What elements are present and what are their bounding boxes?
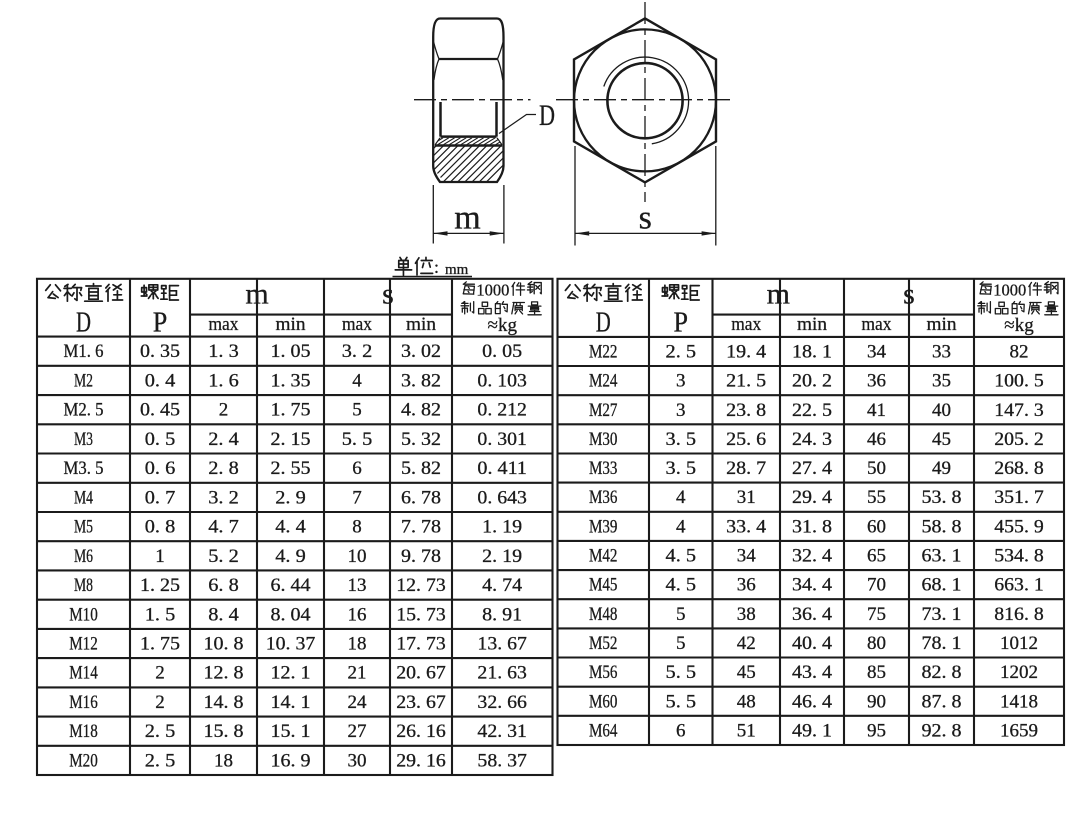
svg-text:0. 6: 0. 6	[145, 458, 176, 479]
svg-text:0. 8: 0. 8	[145, 517, 176, 538]
svg-text:6. 44: 6. 44	[271, 575, 312, 596]
svg-text:60: 60	[867, 516, 886, 537]
svg-text:4. 7: 4. 7	[208, 517, 239, 538]
svg-text:1. 75: 1. 75	[271, 400, 311, 421]
svg-text:20. 67: 20. 67	[396, 663, 446, 684]
svg-text:min: min	[406, 314, 437, 335]
svg-text:M42: M42	[589, 546, 618, 567]
svg-text:63. 1: 63. 1	[922, 546, 962, 567]
svg-text:32. 66: 32. 66	[477, 692, 527, 713]
svg-text:51: 51	[737, 720, 756, 741]
svg-text:M18: M18	[69, 721, 98, 742]
svg-text:18: 18	[214, 750, 233, 771]
svg-text:1418: 1418	[1000, 691, 1038, 712]
svg-text:34. 4: 34. 4	[792, 575, 833, 596]
svg-text:4. 82: 4. 82	[401, 400, 441, 421]
svg-text:M2. 5: M2. 5	[64, 400, 104, 421]
svg-text:21. 63: 21. 63	[477, 663, 527, 684]
svg-text:21. 5: 21. 5	[726, 371, 766, 392]
svg-text:D: D	[76, 308, 91, 339]
svg-text:78. 1: 78. 1	[922, 633, 962, 654]
svg-text:M60: M60	[589, 691, 618, 712]
svg-text:48: 48	[737, 691, 756, 712]
svg-text:6. 8: 6. 8	[208, 575, 239, 596]
svg-text:205. 2: 205. 2	[994, 429, 1044, 450]
svg-text:min: min	[797, 314, 828, 335]
svg-text:43. 4: 43. 4	[792, 662, 833, 683]
svg-text:38: 38	[737, 604, 756, 625]
svg-text:4. 4: 4. 4	[275, 517, 306, 538]
svg-text:s: s	[639, 200, 652, 237]
svg-text:15. 1: 15. 1	[271, 721, 311, 742]
svg-text:85: 85	[867, 662, 886, 683]
svg-text:816. 8: 816. 8	[994, 604, 1044, 625]
svg-text:29. 16: 29. 16	[396, 750, 446, 771]
svg-text:29. 4: 29. 4	[792, 487, 833, 508]
svg-text:M14: M14	[69, 663, 98, 684]
svg-text:5. 32: 5. 32	[401, 429, 441, 450]
svg-text:M16: M16	[69, 692, 98, 713]
svg-text:36. 4: 36. 4	[792, 604, 833, 625]
svg-text:95: 95	[867, 720, 886, 741]
svg-text::: :	[434, 257, 439, 277]
svg-text:41: 41	[867, 400, 886, 421]
svg-text:1: 1	[155, 546, 165, 567]
svg-text:6. 78: 6. 78	[401, 487, 441, 508]
svg-text:1012: 1012	[1000, 633, 1038, 654]
svg-text:0. 45: 0. 45	[140, 400, 180, 421]
svg-text:m: m	[767, 278, 790, 311]
svg-text:M1. 6: M1. 6	[64, 341, 104, 362]
svg-text:s: s	[903, 278, 915, 311]
svg-text:58. 37: 58. 37	[477, 750, 527, 771]
svg-text:70: 70	[867, 575, 886, 596]
svg-text:P: P	[153, 308, 168, 339]
svg-text:3. 82: 3. 82	[401, 370, 441, 391]
svg-text:2. 15: 2. 15	[271, 429, 311, 450]
svg-text:15. 8: 15. 8	[204, 721, 244, 742]
svg-text:87. 8: 87. 8	[922, 691, 962, 712]
svg-text:12. 8: 12. 8	[204, 663, 244, 684]
svg-text:68. 1: 68. 1	[922, 575, 962, 596]
svg-text:1659: 1659	[1000, 720, 1038, 741]
svg-text:s: s	[382, 278, 394, 311]
svg-text:1. 6: 1. 6	[208, 370, 239, 391]
svg-text:5: 5	[352, 400, 362, 421]
svg-text:73. 1: 73. 1	[922, 604, 962, 625]
svg-text:4: 4	[676, 516, 686, 537]
svg-text:4: 4	[352, 370, 362, 391]
svg-text:53. 8: 53. 8	[922, 487, 962, 508]
svg-text:82: 82	[1010, 342, 1029, 363]
svg-text:1000: 1000	[476, 281, 509, 300]
svg-text:4. 5: 4. 5	[666, 546, 697, 567]
svg-text:5. 2: 5. 2	[208, 546, 239, 567]
svg-text:1. 3: 1. 3	[208, 341, 239, 362]
svg-text:M10: M10	[69, 604, 98, 625]
svg-text:6: 6	[352, 458, 362, 479]
svg-text:3. 5: 3. 5	[666, 458, 697, 479]
svg-text:8. 91: 8. 91	[482, 604, 522, 625]
svg-text:534. 8: 534. 8	[994, 546, 1044, 567]
svg-text:M36: M36	[589, 487, 618, 508]
svg-text:46. 4: 46. 4	[792, 691, 833, 712]
svg-text:3: 3	[676, 371, 686, 392]
svg-text:1000: 1000	[993, 281, 1026, 300]
svg-text:0. 35: 0. 35	[140, 341, 180, 362]
svg-text:M27: M27	[589, 400, 618, 421]
svg-text:P: P	[674, 308, 689, 339]
svg-text:8: 8	[352, 517, 362, 538]
svg-text:13. 67: 13. 67	[477, 634, 527, 655]
svg-text:M4: M4	[74, 487, 93, 508]
svg-text:2. 55: 2. 55	[271, 458, 311, 479]
svg-text:7: 7	[352, 487, 362, 508]
svg-text:9. 78: 9. 78	[401, 546, 441, 567]
svg-text:≈kg: ≈kg	[1004, 315, 1034, 336]
svg-text:32. 4: 32. 4	[792, 546, 833, 567]
svg-text:max: max	[862, 314, 892, 335]
svg-text:33: 33	[932, 342, 951, 363]
svg-text:25. 6: 25. 6	[726, 429, 766, 450]
svg-text:23. 67: 23. 67	[396, 692, 446, 713]
svg-text:24. 3: 24. 3	[792, 429, 832, 450]
svg-text:45: 45	[737, 662, 756, 683]
svg-text:m: m	[245, 278, 268, 311]
svg-text:12. 73: 12. 73	[396, 575, 446, 596]
svg-text:8. 04: 8. 04	[271, 604, 312, 625]
svg-text:268. 8: 268. 8	[994, 458, 1044, 479]
svg-text:2. 5: 2. 5	[145, 721, 176, 742]
svg-text:90: 90	[867, 691, 886, 712]
svg-text:92. 8: 92. 8	[922, 720, 962, 741]
svg-text:M3: M3	[74, 429, 93, 450]
svg-text:4. 74: 4. 74	[482, 575, 523, 596]
svg-text:5. 5: 5. 5	[342, 429, 373, 450]
svg-text:30: 30	[348, 750, 367, 771]
svg-text:M56: M56	[589, 662, 618, 683]
svg-text:2. 5: 2. 5	[145, 750, 176, 771]
svg-text:M24: M24	[589, 371, 618, 392]
svg-text:2: 2	[155, 692, 165, 713]
svg-text:0. 4: 0. 4	[145, 370, 176, 391]
svg-text:42. 31: 42. 31	[477, 721, 527, 742]
svg-text:27. 4: 27. 4	[792, 458, 833, 479]
svg-text:M45: M45	[589, 575, 618, 596]
svg-text:0. 643: 0. 643	[477, 487, 527, 508]
svg-text:663. 1: 663. 1	[994, 575, 1044, 596]
svg-text:55: 55	[867, 487, 886, 508]
svg-text:max: max	[342, 314, 372, 335]
svg-text:5: 5	[676, 633, 686, 654]
svg-text:M52: M52	[589, 633, 618, 654]
svg-text:0. 05: 0. 05	[482, 341, 522, 362]
svg-text:23. 8: 23. 8	[726, 400, 766, 421]
svg-text:24: 24	[348, 692, 368, 713]
svg-text:m: m	[454, 200, 480, 237]
svg-text:58. 8: 58. 8	[922, 516, 962, 537]
svg-text:35: 35	[932, 371, 951, 392]
svg-text:16: 16	[348, 604, 367, 625]
svg-text:49. 1: 49. 1	[792, 720, 832, 741]
svg-text:18: 18	[348, 634, 367, 655]
svg-text:351. 7: 351. 7	[994, 487, 1044, 508]
svg-text:M48: M48	[589, 604, 618, 625]
svg-text:M33: M33	[589, 458, 618, 479]
svg-text:26. 16: 26. 16	[396, 721, 446, 742]
svg-text:3: 3	[676, 400, 686, 421]
svg-text:147. 3: 147. 3	[994, 400, 1044, 421]
svg-text:M2: M2	[74, 370, 93, 391]
svg-text:M8: M8	[74, 575, 93, 596]
svg-text:3. 5: 3. 5	[666, 429, 697, 450]
svg-text:1. 25: 1. 25	[140, 575, 180, 596]
svg-text:2. 9: 2. 9	[275, 487, 306, 508]
svg-text:65: 65	[867, 546, 886, 567]
svg-text:31. 8: 31. 8	[792, 516, 832, 537]
svg-text:M3. 5: M3. 5	[64, 458, 104, 479]
svg-text:14. 1: 14. 1	[271, 692, 311, 713]
svg-text:36: 36	[737, 575, 756, 596]
svg-text:20. 2: 20. 2	[792, 371, 832, 392]
svg-text:5. 5: 5. 5	[666, 691, 697, 712]
svg-text:1. 05: 1. 05	[271, 341, 311, 362]
svg-text:M64: M64	[589, 720, 618, 741]
svg-text:27: 27	[348, 721, 367, 742]
svg-text:M39: M39	[589, 516, 618, 537]
svg-text:33. 4: 33. 4	[726, 516, 767, 537]
svg-text:17. 73: 17. 73	[396, 634, 446, 655]
svg-text:4. 5: 4. 5	[666, 575, 697, 596]
svg-text:16. 9: 16. 9	[271, 750, 311, 771]
svg-text:8. 4: 8. 4	[208, 604, 239, 625]
svg-text:≈kg: ≈kg	[488, 315, 518, 336]
svg-text:80: 80	[867, 633, 886, 654]
svg-text:40: 40	[932, 400, 951, 421]
svg-text:2. 8: 2. 8	[208, 458, 239, 479]
svg-text:2. 19: 2. 19	[482, 546, 522, 567]
svg-text:3. 02: 3. 02	[401, 341, 441, 362]
svg-text:75: 75	[867, 604, 886, 625]
svg-text:40. 4: 40. 4	[792, 633, 833, 654]
svg-text:D: D	[539, 99, 555, 132]
svg-text:M5: M5	[74, 517, 93, 538]
svg-text:1. 75: 1. 75	[140, 634, 180, 655]
svg-text:34: 34	[867, 342, 887, 363]
svg-text:82. 8: 82. 8	[922, 662, 962, 683]
svg-text:10: 10	[348, 546, 367, 567]
svg-text:1202: 1202	[1000, 662, 1038, 683]
svg-text:455. 9: 455. 9	[994, 516, 1044, 537]
svg-text:4. 9: 4. 9	[275, 546, 306, 567]
svg-text:14. 8: 14. 8	[204, 692, 244, 713]
svg-text:min: min	[927, 314, 958, 335]
svg-text:13: 13	[348, 575, 367, 596]
svg-text:19. 4: 19. 4	[726, 342, 767, 363]
svg-text:3. 2: 3. 2	[208, 487, 239, 508]
svg-text:1. 5: 1. 5	[145, 604, 176, 625]
svg-text:0. 7: 0. 7	[145, 487, 176, 508]
svg-text:36: 36	[867, 371, 886, 392]
svg-text:0. 411: 0. 411	[477, 458, 527, 479]
svg-text:M20: M20	[69, 750, 98, 771]
svg-text:M22: M22	[589, 342, 618, 363]
svg-text:5. 5: 5. 5	[666, 662, 697, 683]
svg-text:M30: M30	[589, 429, 618, 450]
svg-text:max: max	[731, 314, 761, 335]
svg-text:21: 21	[348, 663, 367, 684]
svg-text:42: 42	[737, 633, 756, 654]
svg-text:50: 50	[867, 458, 886, 479]
svg-text:15. 73: 15. 73	[396, 604, 446, 625]
svg-text:5: 5	[676, 604, 686, 625]
svg-text:100. 5: 100. 5	[994, 371, 1044, 392]
svg-text:49: 49	[932, 458, 951, 479]
svg-text:2: 2	[155, 663, 165, 684]
svg-text:D: D	[596, 308, 611, 339]
svg-text:46: 46	[867, 429, 886, 450]
svg-text:12. 1: 12. 1	[271, 663, 311, 684]
svg-text:1. 35: 1. 35	[271, 370, 311, 391]
svg-text:34: 34	[737, 546, 757, 567]
svg-text:3. 2: 3. 2	[342, 341, 373, 362]
svg-text:M6: M6	[74, 546, 93, 567]
svg-text:mm: mm	[445, 262, 469, 278]
svg-text:28. 7: 28. 7	[726, 458, 766, 479]
svg-text:0. 103: 0. 103	[477, 370, 527, 391]
svg-text:0. 301: 0. 301	[477, 429, 527, 450]
svg-text:0. 5: 0. 5	[145, 429, 176, 450]
svg-text:2: 2	[219, 400, 229, 421]
svg-text:max: max	[209, 314, 239, 335]
svg-text:4: 4	[676, 487, 686, 508]
svg-text:2. 4: 2. 4	[208, 429, 239, 450]
svg-text:22. 5: 22. 5	[792, 400, 832, 421]
svg-text:31: 31	[737, 487, 756, 508]
svg-text:0. 212: 0. 212	[477, 400, 527, 421]
svg-text:5. 82: 5. 82	[401, 458, 441, 479]
svg-text:18. 1: 18. 1	[792, 342, 832, 363]
svg-text:45: 45	[932, 429, 951, 450]
svg-text:10. 37: 10. 37	[266, 634, 316, 655]
svg-text:min: min	[276, 314, 307, 335]
svg-text:7. 78: 7. 78	[401, 517, 441, 538]
svg-text:M12: M12	[69, 634, 98, 655]
svg-text:2. 5: 2. 5	[666, 342, 697, 363]
svg-text:1. 19: 1. 19	[482, 517, 522, 538]
svg-text:10. 8: 10. 8	[204, 634, 244, 655]
svg-text:6: 6	[676, 720, 686, 741]
